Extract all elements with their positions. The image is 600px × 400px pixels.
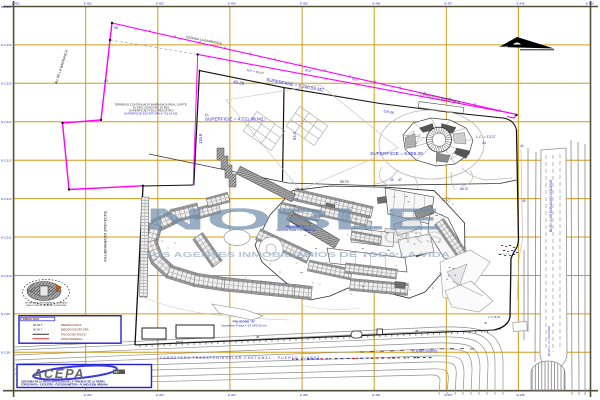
svg-text:N 2,39: N 2,39: [1, 312, 10, 316]
svg-text:®: ®: [444, 196, 451, 206]
svg-text:E 457: E 457: [445, 393, 453, 397]
svg-text:N 2,317: N 2,317: [1, 5, 12, 9]
svg-text:45: 45: [522, 199, 526, 203]
svg-text:N 2,314: N 2,314: [1, 120, 12, 124]
svg-text:L.C. = 13.27: L.C. = 13.27: [476, 135, 496, 139]
svg-text:BLVD. LUIS DONALDO COLOSIO: BLVD. LUIS DONALDO COLOSIO: [549, 180, 553, 232]
svg-text:ORS: ORS: [383, 229, 443, 247]
svg-text:E 458: E 458: [517, 393, 525, 397]
svg-text:80.2: 80.2: [352, 77, 359, 82]
svg-text:TOPOGRAFIA - CATASTRO - FOTOGR: TOPOGRAFIA - CATASTRO - FOTOGRAMETRIA - …: [21, 384, 108, 387]
svg-text:E 453: E 453: [156, 2, 164, 6]
svg-text:E 455: E 455: [300, 2, 308, 6]
svg-text:CUERPO NORTE: CUERPO NORTE: [412, 350, 438, 354]
svg-text:45.01: 45.01: [296, 187, 304, 191]
svg-text:SUPERFICIE ESCRITURA 4,731.16: SUPERFICIE ESCRITURA 4,731.16 M2.: [124, 112, 179, 116]
svg-text:VIA LIBRAMIENTO (PROYECTO): VIA LIBRAMIENTO (PROYECTO): [104, 211, 108, 262]
svg-text:E 453: E 453: [156, 393, 164, 397]
svg-text:44: 44: [520, 144, 524, 148]
svg-text:45: 45: [256, 335, 260, 339]
svg-text:ZONA FEDERAL: ZONA FEDERAL: [61, 337, 83, 341]
svg-text:POLIGONO FISICO: POLIGONO FISICO: [61, 332, 87, 336]
svg-text:SUPERFICIE = 5,700.50 M2: SUPERFICIE = 5,700.50 M2: [266, 77, 325, 93]
svg-text:44: 44: [498, 327, 502, 331]
svg-text:86.37: 86.37: [460, 187, 469, 191]
svg-text:Superficie Física = 30,986.00: Superficie Física = 30,986.00 m2: [276, 228, 316, 232]
svg-text:55.79: 55.79: [340, 180, 349, 184]
svg-text:E 456: E 456: [372, 2, 380, 6]
svg-text:45: 45: [390, 178, 394, 182]
svg-text:E 454: E 454: [228, 393, 236, 397]
svg-text:E 456: E 456: [372, 393, 380, 397]
svg-text:SUPERFICIE = 9,055.20: SUPERFICIE = 9,055.20: [370, 151, 423, 157]
svg-text:MEDIDA ESCRITURA: MEDIDA ESCRITURA: [61, 328, 89, 332]
svg-text:45.28: 45.28: [233, 79, 245, 86]
svg-text:55.01: 55.01: [176, 340, 184, 344]
svg-text:N 2,312: N 2,312: [1, 197, 12, 201]
svg-text:M.T. = 110.07: M.T. = 110.07: [247, 68, 265, 75]
svg-text:80.8: 80.8: [305, 68, 312, 73]
svg-text:SUPERFICIE = 4,721.08 M2.: SUPERFICIE = 4,721.08 M2.: [205, 117, 265, 122]
svg-text:CARRETERA TRANSPENINSULAR CHET: CARRETERA TRANSPENINSULAR CHETUMAL - PUE…: [160, 356, 320, 360]
svg-text:00.00 T: 00.00 T: [33, 323, 43, 327]
svg-text:N 2,316: N 2,316: [1, 43, 12, 47]
svg-text:BLVD. L. D. COLOSIO: BLVD. L. D. COLOSIO: [547, 325, 551, 356]
svg-text:E 454: E 454: [228, 2, 236, 6]
svg-text:E 452: E 452: [84, 2, 92, 6]
svg-text:45: 45: [415, 329, 419, 333]
svg-text:MEDIDA FISICA: MEDIDA FISICA: [61, 323, 82, 327]
svg-text:45: 45: [484, 321, 488, 325]
svg-text:119.36: 119.36: [383, 109, 394, 115]
svg-text:94.0: 94.0: [292, 131, 297, 140]
svg-text:N 2,311: N 2,311: [1, 235, 12, 239]
svg-text:E 455: E 455: [300, 393, 308, 397]
svg-text:119.8: 119.8: [198, 133, 203, 144]
svg-text:47: 47: [398, 178, 402, 182]
svg-text:98: 98: [114, 26, 118, 30]
svg-text:ACEPA: ACEPA: [32, 366, 85, 381]
svg-text:L.C.=8.20: L.C.=8.20: [488, 315, 501, 319]
svg-text:E 457: E 457: [445, 2, 453, 6]
svg-text:N 2,38: N 2,38: [1, 351, 10, 355]
svg-text:N 2,315: N 2,315: [1, 82, 12, 86]
svg-text:Superficie Física = 14,349.20: Superficie Física = 14,349.20 m2: [221, 324, 267, 328]
svg-text:SIMBOLOGIA: SIMBOLOGIA: [23, 317, 40, 321]
svg-text:E 452: E 452: [84, 393, 92, 397]
svg-text:45: 45: [104, 79, 108, 83]
svg-text:TUS AGENTES INMOBILIARIOS DE T: TUS AGENTES INMOBILIARIOS DE TODA LA VID…: [145, 250, 451, 259]
svg-text:44: 44: [482, 141, 486, 145]
svg-text:E 458: E 458: [517, 2, 525, 6]
svg-text:Escala: Escala: [500, 45, 508, 49]
svg-text:E 459: E 459: [586, 2, 594, 6]
svg-text:N 2,310: N 2,310: [1, 274, 12, 278]
svg-text:E 451: E 451: [12, 2, 20, 6]
svg-text:DIRECCION DE CATASTRO MUNICIPA: DIRECCION DE CATASTRO MUNICIPAL: [26, 304, 67, 307]
svg-text:SECRETARIA DE DESARROLLO URBAN: SECRETARIA DE DESARROLLO URBANO: [25, 302, 68, 305]
svg-text:AV. DE LA BARRANCA: AV. DE LA BARRANCA: [54, 49, 69, 84]
svg-text:N 2,313: N 2,313: [1, 159, 12, 163]
svg-text:00.00 T: 00.00 T: [33, 328, 43, 332]
